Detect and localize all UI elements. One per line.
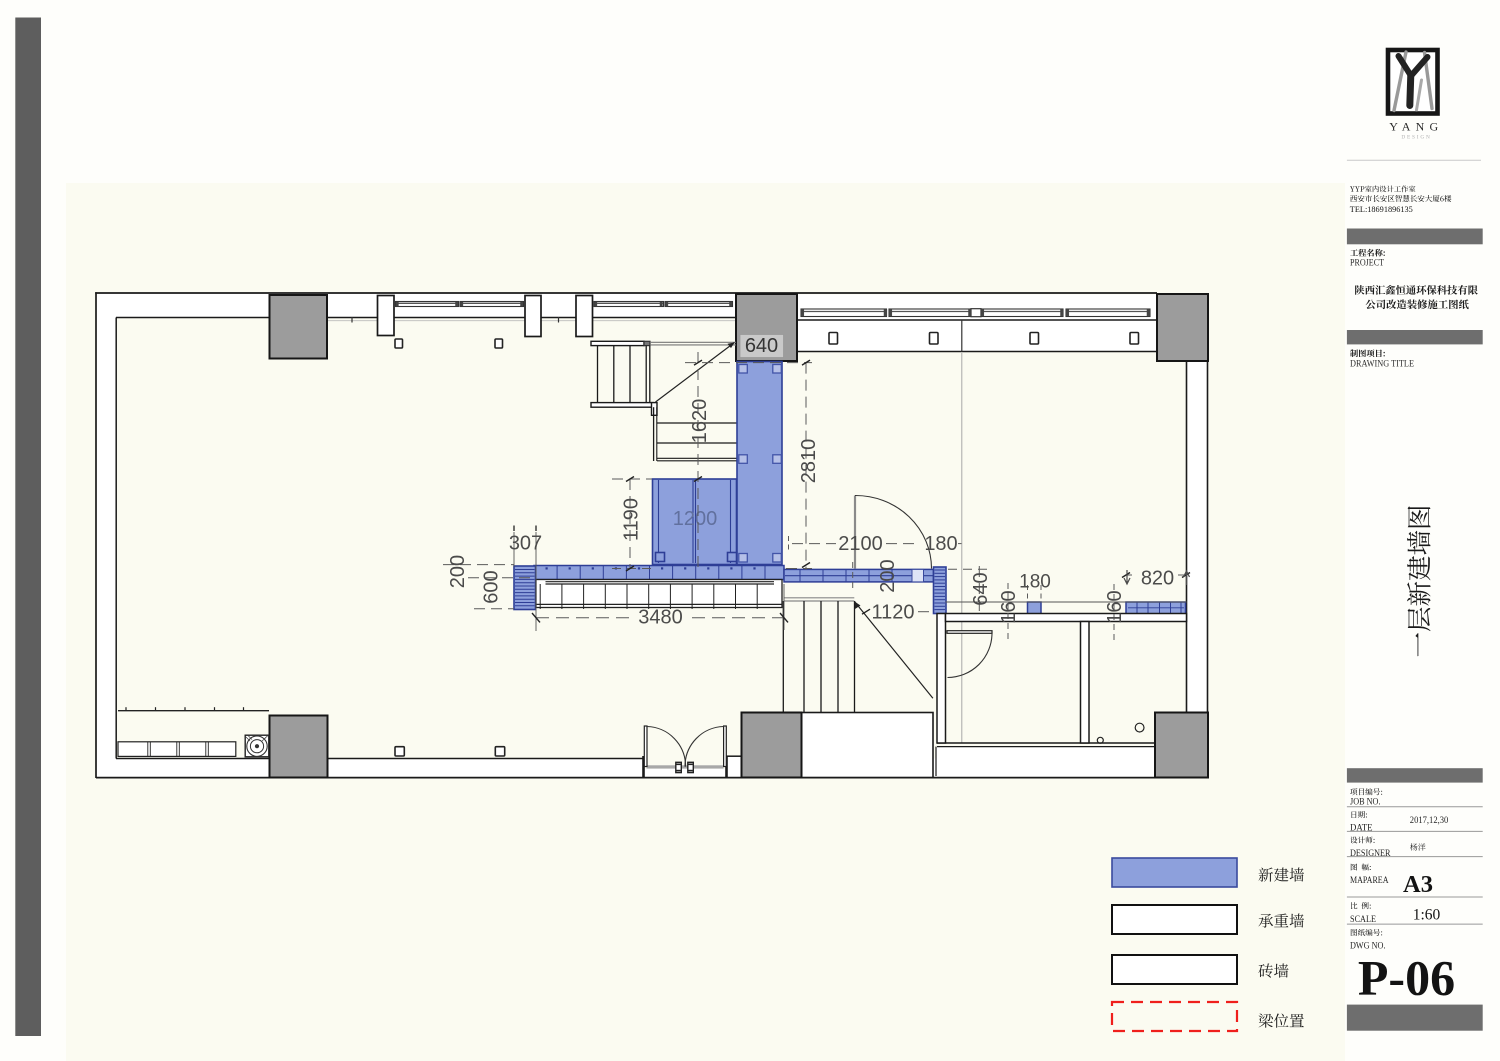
svg-text:1190: 1190 <box>621 498 643 541</box>
svg-text:160: 160 <box>998 590 1020 623</box>
svg-text:1620: 1620 <box>689 399 711 444</box>
svg-text:820: 820 <box>1141 568 1174 590</box>
svg-text:PROJECT: PROJECT <box>1350 259 1384 269</box>
svg-text:640: 640 <box>745 335 778 357</box>
svg-text:SCALE: SCALE <box>1350 915 1376 925</box>
svg-text:DRAWING TITLE: DRAWING TITLE <box>1350 360 1414 370</box>
svg-text:2017,12,30: 2017,12,30 <box>1410 815 1449 825</box>
svg-text:YANG: YANG <box>1389 120 1443 134</box>
svg-text:2100: 2100 <box>838 533 883 555</box>
svg-text:DESIGNER: DESIGNER <box>1350 849 1391 859</box>
svg-text:DESIGN: DESIGN <box>1401 134 1431 140</box>
svg-text:307: 307 <box>509 533 542 555</box>
svg-text:JOB NO.: JOB NO. <box>1350 797 1381 807</box>
svg-text:3480: 3480 <box>638 607 683 629</box>
svg-text:P-06: P-06 <box>1358 950 1455 1006</box>
svg-text:1200: 1200 <box>673 508 718 530</box>
svg-text:180: 180 <box>1019 571 1051 592</box>
svg-text:1120: 1120 <box>871 602 914 624</box>
svg-text:200: 200 <box>447 555 469 588</box>
svg-text:160: 160 <box>1104 590 1126 623</box>
svg-text:640: 640 <box>970 572 992 605</box>
svg-text:A3: A3 <box>1403 871 1433 898</box>
svg-text:MAPAREA: MAPAREA <box>1350 876 1389 886</box>
svg-text:DATE: DATE <box>1350 824 1373 834</box>
svg-text:180: 180 <box>924 533 957 555</box>
svg-text:600: 600 <box>481 570 503 603</box>
svg-text:1:60: 1:60 <box>1413 906 1441 923</box>
svg-text:2810: 2810 <box>798 439 820 484</box>
svg-text:200: 200 <box>877 559 899 592</box>
svg-text:TEL:18691896135: TEL:18691896135 <box>1350 204 1413 214</box>
